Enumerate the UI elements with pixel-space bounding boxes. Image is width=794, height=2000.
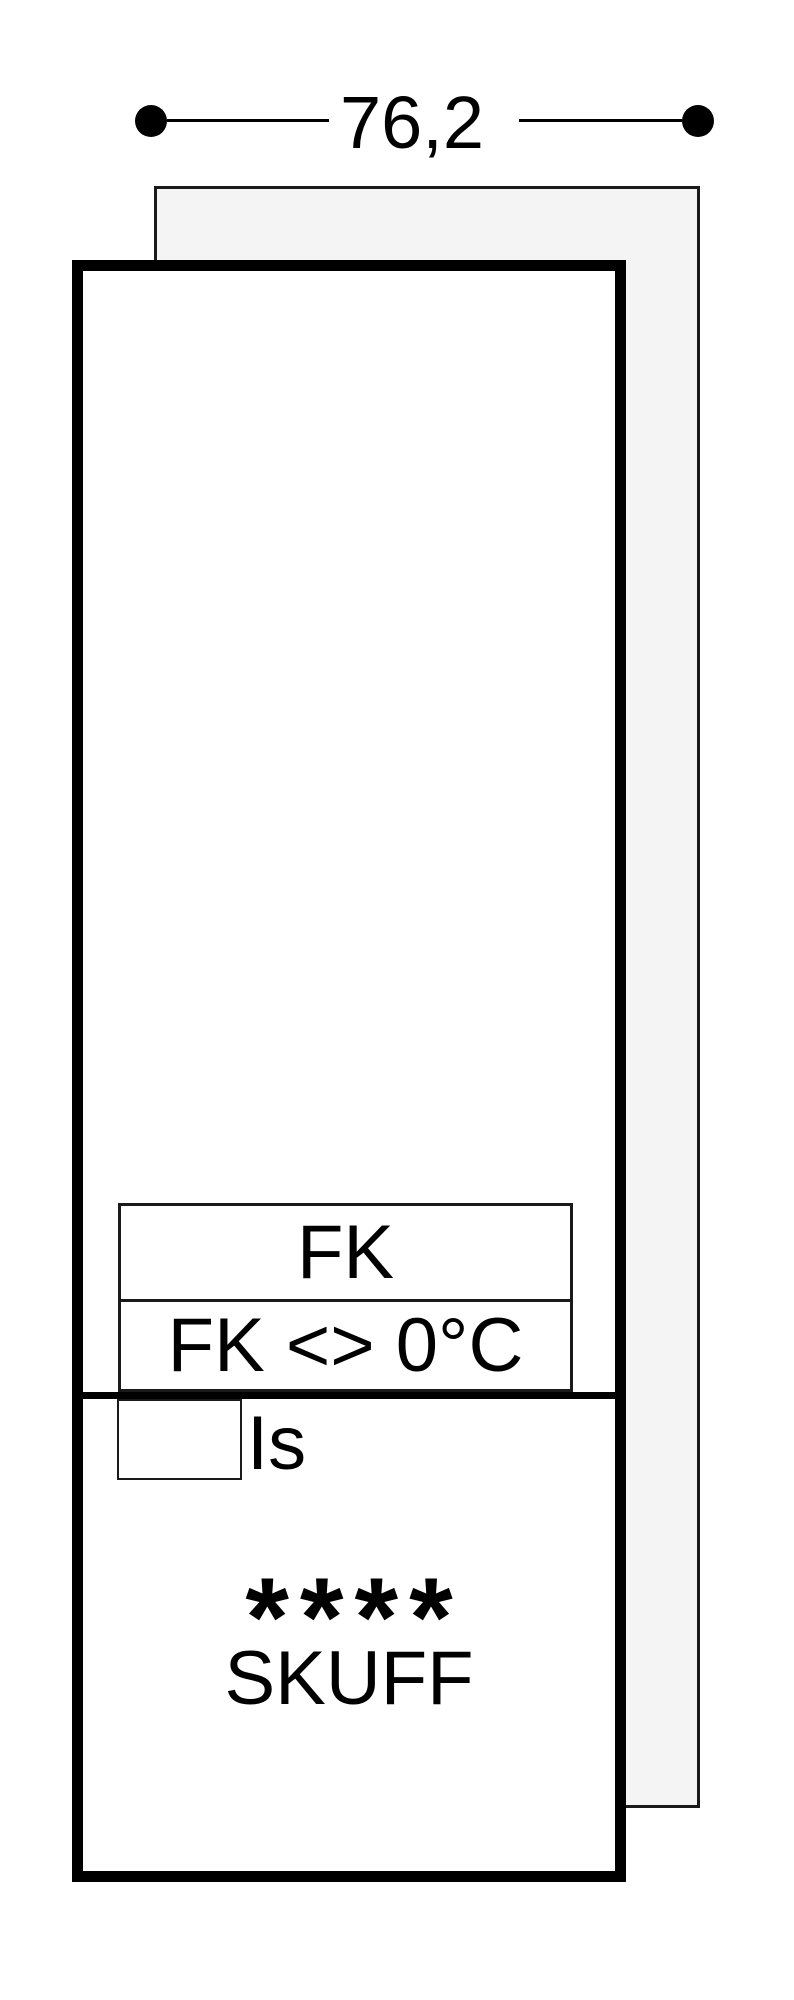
dimension-line-right-segment <box>519 119 682 122</box>
fridge-label-box-group: FK FK <> 0°C <box>118 1203 573 1392</box>
ice-compartment-box <box>117 1399 242 1480</box>
dimension-label: 76,2 <box>292 86 532 160</box>
dimension-endpoint-dot-right <box>682 105 714 137</box>
compartment-divider-line <box>72 1392 626 1399</box>
freezer-drawer-label: SKUFF <box>83 1641 615 1717</box>
ice-compartment-label: Is <box>247 1406 306 1482</box>
fridge-compartment-label: FK <box>121 1206 570 1302</box>
fridge-temperature-label: FK <> 0°C <box>121 1302 570 1389</box>
dimension-endpoint-dot-left <box>135 105 167 137</box>
installation-diagram: 76,2 FK FK <> 0°C Is **** SKUFF <box>0 0 794 2000</box>
